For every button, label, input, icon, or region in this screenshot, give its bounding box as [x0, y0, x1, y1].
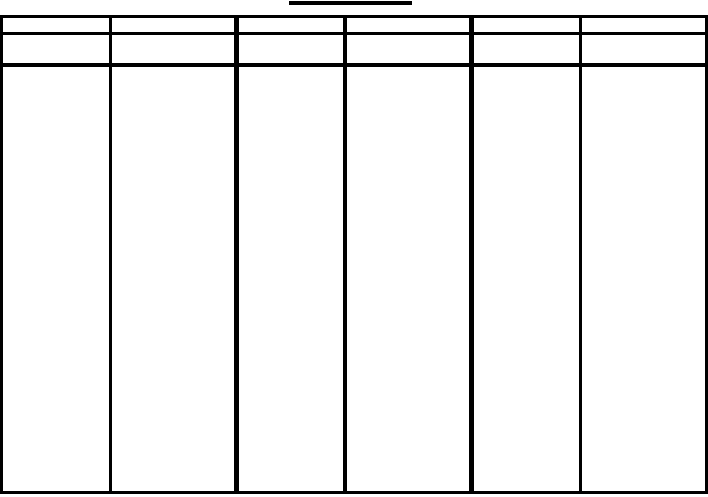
header-cell	[582, 18, 705, 35]
header-cell	[239, 35, 347, 67]
header-cell	[474, 35, 582, 67]
body-cell	[239, 67, 347, 491]
blank-table	[0, 15, 708, 494]
title-underline-rule	[289, 1, 412, 5]
header-cell	[112, 35, 239, 67]
body-cell	[347, 67, 474, 491]
header-cell	[112, 18, 239, 35]
header-cell	[582, 35, 705, 67]
header-cell	[3, 35, 112, 67]
header-cell	[239, 18, 347, 35]
body-cell	[112, 67, 239, 491]
document-page	[0, 0, 708, 497]
header-cell	[347, 35, 474, 67]
header-cell	[474, 18, 582, 35]
body-cell	[582, 67, 705, 491]
header-cell	[347, 18, 474, 35]
body-cell	[474, 67, 582, 491]
body-cell	[3, 67, 112, 491]
header-cell	[3, 18, 112, 35]
